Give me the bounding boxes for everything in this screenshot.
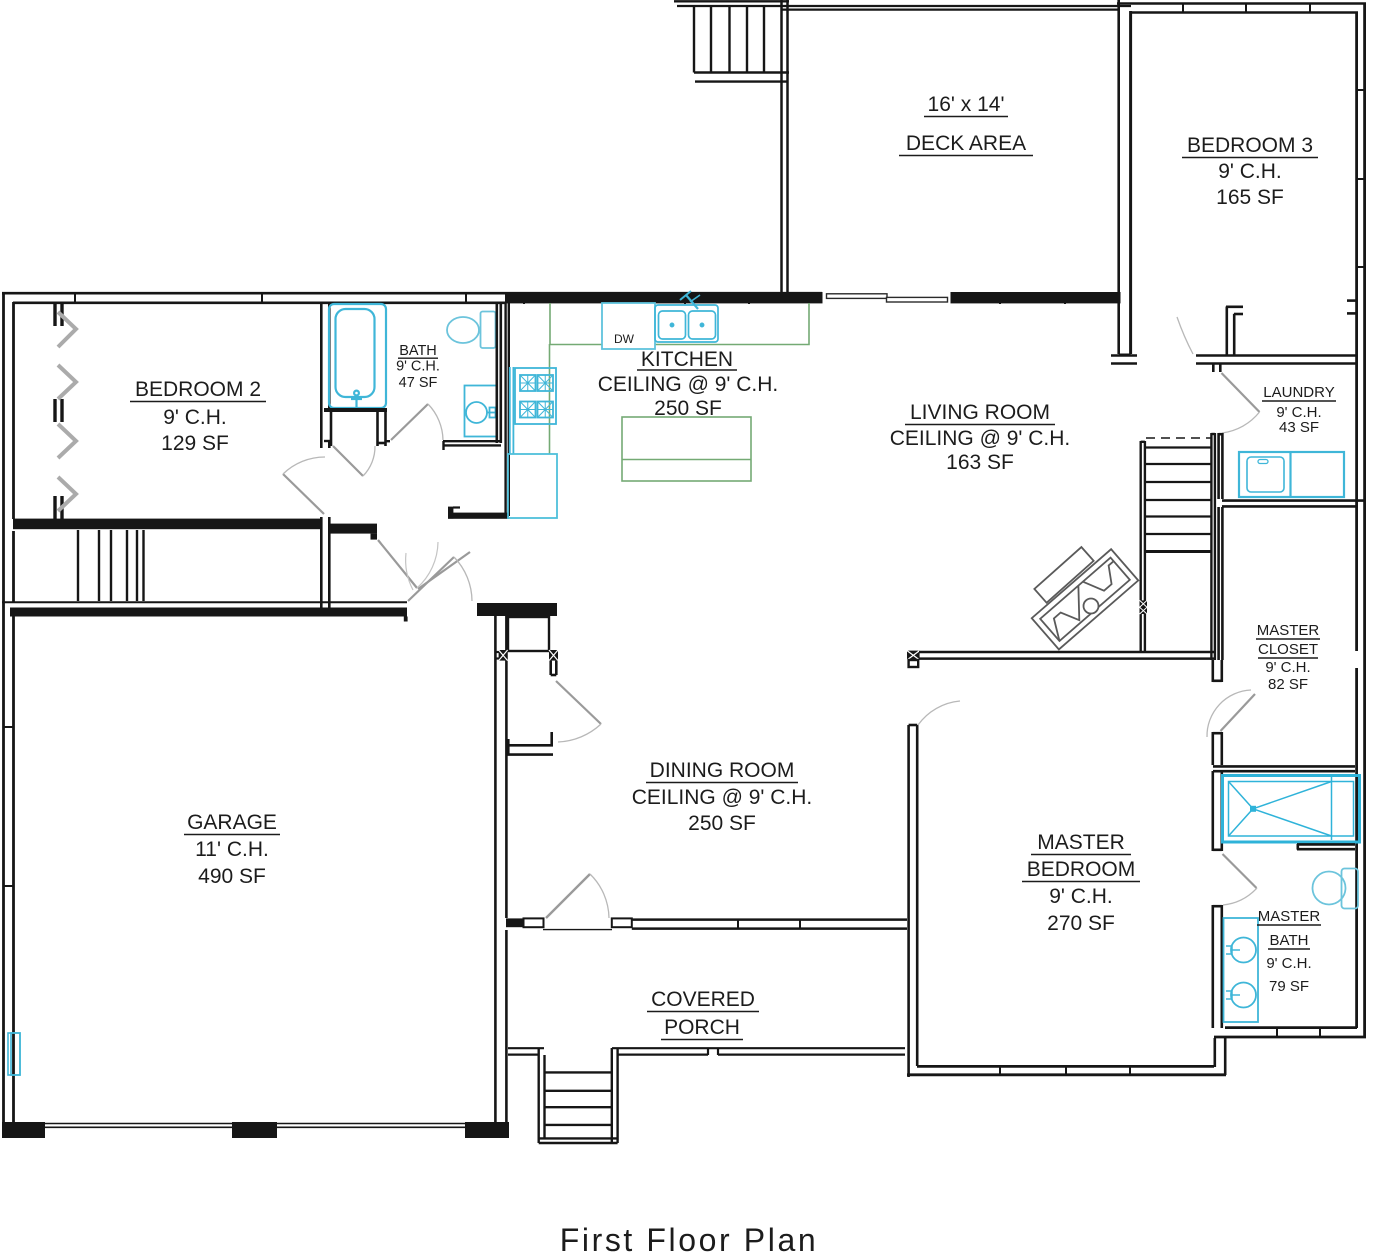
svg-text:163 SF: 163 SF [946,451,1014,474]
svg-text:DECK AREA: DECK AREA [906,132,1026,155]
svg-text:79 SF: 79 SF [1269,978,1309,995]
svg-text:250 SF: 250 SF [688,812,756,835]
svg-text:KITCHEN: KITCHEN [641,348,733,371]
svg-text:BATH: BATH [1270,932,1309,949]
svg-text:BEDROOM 3: BEDROOM 3 [1187,134,1313,157]
svg-text:DW: DW [614,332,635,346]
svg-text:LIVING ROOM: LIVING ROOM [910,401,1050,424]
svg-text:11' C.H.: 11' C.H. [195,838,269,861]
svg-text:CEILING @ 9' C.H.: CEILING @ 9' C.H. [632,786,813,809]
svg-text:BATH: BATH [399,343,437,359]
svg-text:BEDROOM 2: BEDROOM 2 [135,378,261,401]
svg-text:MASTER: MASTER [1257,622,1320,639]
svg-text:270 SF: 270 SF [1047,912,1115,935]
svg-text:9' C.H.: 9' C.H. [396,359,440,375]
svg-text:First Floor Plan: First Floor Plan [560,1222,819,1256]
svg-text:DINING ROOM: DINING ROOM [650,759,795,782]
svg-text:LAUNDRY: LAUNDRY [1263,384,1334,401]
svg-text:CLOSET: CLOSET [1258,641,1318,658]
svg-text:PORCH: PORCH [664,1016,740,1039]
svg-text:CEILING @ 9' C.H.: CEILING @ 9' C.H. [598,373,779,396]
svg-text:GARAGE: GARAGE [187,811,277,834]
svg-text:250 SF: 250 SF [654,397,722,420]
svg-text:MASTER: MASTER [1037,831,1125,854]
svg-text:9' C.H.: 9' C.H. [1266,955,1311,972]
svg-text:9' C.H.: 9' C.H. [1265,659,1310,676]
svg-text:43 SF: 43 SF [1279,419,1319,436]
svg-text:16' x 14': 16' x 14' [928,93,1005,116]
svg-text:47 SF: 47 SF [399,375,438,391]
svg-text:BEDROOM: BEDROOM [1027,858,1136,881]
svg-text:82 SF: 82 SF [1268,676,1308,693]
svg-text:MASTER: MASTER [1258,908,1321,925]
svg-text:9' C.H.: 9' C.H. [1049,885,1113,908]
svg-text:COVERED: COVERED [651,988,755,1011]
svg-text:9' C.H.: 9' C.H. [163,406,227,429]
svg-text:9' C.H.: 9' C.H. [1218,160,1282,183]
svg-text:CEILING @ 9' C.H.: CEILING @ 9' C.H. [890,427,1071,450]
svg-text:165 SF: 165 SF [1216,186,1284,209]
svg-text:490 SF: 490 SF [198,865,266,888]
svg-text:129 SF: 129 SF [161,432,229,455]
